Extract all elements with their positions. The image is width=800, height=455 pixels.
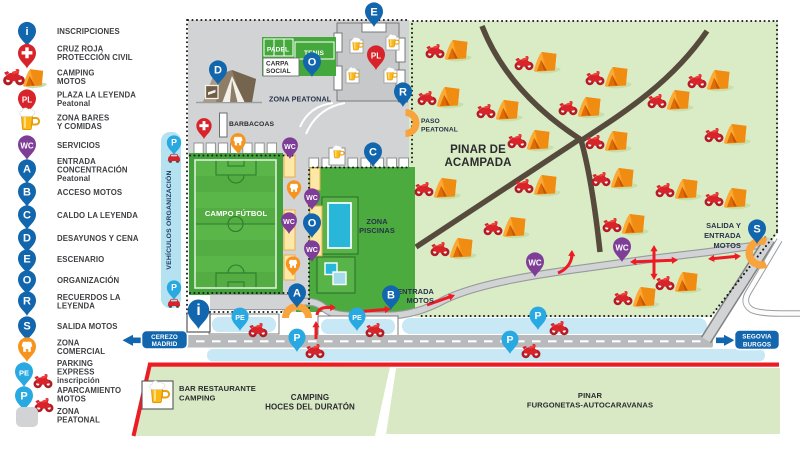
svg-text:ESCENARIO: ESCENARIO bbox=[57, 255, 104, 264]
svg-text:SOCIAL: SOCIAL bbox=[266, 68, 291, 75]
svg-text:P: P bbox=[294, 333, 301, 344]
svg-text:ACAMPADA: ACAMPADA bbox=[444, 157, 511, 169]
svg-text:BARBACOAS: BARBACOAS bbox=[229, 121, 274, 128]
svg-text:PASO: PASO bbox=[421, 118, 440, 125]
svg-text:S: S bbox=[753, 223, 760, 235]
svg-text:S: S bbox=[23, 320, 30, 332]
svg-text:PADEL: PADEL bbox=[267, 47, 289, 54]
svg-text:i: i bbox=[196, 302, 200, 319]
svg-text:SERVICIOS: SERVICIOS bbox=[57, 141, 100, 150]
svg-text:PISCINAS: PISCINAS bbox=[359, 226, 395, 235]
svg-text:WC: WC bbox=[615, 243, 629, 252]
svg-text:ENTRADA: ENTRADA bbox=[397, 287, 434, 296]
svg-text:ACCESO MOTOS: ACCESO MOTOS bbox=[57, 188, 122, 197]
svg-text:inscripción: inscripción bbox=[57, 376, 100, 385]
svg-text:Y COMIDAS: Y COMIDAS bbox=[57, 122, 102, 131]
svg-text:PINAR: PINAR bbox=[578, 391, 603, 400]
svg-text:ENTRADA: ENTRADA bbox=[704, 231, 741, 240]
svg-text:CAMPING: CAMPING bbox=[291, 393, 329, 402]
svg-text:PL: PL bbox=[22, 95, 32, 104]
svg-text:D: D bbox=[23, 232, 31, 244]
svg-text:CARPA: CARPA bbox=[266, 61, 289, 68]
svg-text:CEREZO: CEREZO bbox=[151, 334, 178, 341]
svg-text:A: A bbox=[23, 163, 31, 175]
svg-text:R: R bbox=[399, 86, 407, 98]
svg-text:CALDO LA LEYENDA: CALDO LA LEYENDA bbox=[57, 211, 138, 220]
svg-text:WC: WC bbox=[20, 141, 34, 150]
svg-text:DESAYUNOS Y CENA: DESAYUNOS Y CENA bbox=[57, 234, 139, 243]
svg-text:ORGANIZACIÓN: ORGANIZACIÓN bbox=[57, 276, 120, 285]
svg-text:CAMPO FÚTBOL: CAMPO FÚTBOL bbox=[205, 209, 268, 218]
svg-text:P: P bbox=[507, 335, 514, 346]
svg-text:O: O bbox=[308, 217, 317, 229]
svg-text:PE: PE bbox=[352, 314, 362, 322]
svg-text:PE: PE bbox=[19, 368, 29, 377]
svg-text:PROTECCIÓN CIVIL: PROTECCIÓN CIVIL bbox=[57, 53, 133, 62]
svg-text:Peatonal: Peatonal bbox=[57, 99, 90, 108]
svg-text:P: P bbox=[171, 283, 177, 293]
svg-text:INSCRIPCIONES: INSCRIPCIONES bbox=[57, 27, 120, 36]
svg-text:C: C bbox=[23, 209, 31, 221]
svg-text:MOTOS: MOTOS bbox=[714, 241, 741, 250]
svg-text:B: B bbox=[23, 186, 31, 198]
svg-text:COMERCIAL: COMERCIAL bbox=[57, 347, 105, 356]
svg-text:ZONA PEATONAL: ZONA PEATONAL bbox=[269, 95, 332, 104]
svg-text:PE: PE bbox=[235, 314, 245, 322]
svg-text:C: C bbox=[369, 146, 377, 158]
svg-text:FURGONETAS-AUTOCARAVANAS: FURGONETAS-AUTOCARAVANAS bbox=[527, 401, 653, 410]
svg-text:i: i bbox=[25, 26, 28, 38]
svg-text:ZONA: ZONA bbox=[366, 217, 388, 226]
svg-text:R: R bbox=[23, 295, 31, 307]
svg-text:BURGOS: BURGOS bbox=[743, 341, 771, 348]
svg-text:E: E bbox=[370, 6, 377, 18]
svg-text:SEGOVIA: SEGOVIA bbox=[742, 334, 772, 341]
svg-text:VEHÍCULOS ORGANIZACIÓN: VEHÍCULOS ORGANIZACIÓN bbox=[164, 170, 173, 269]
svg-text:PL: PL bbox=[371, 51, 381, 60]
svg-text:E: E bbox=[23, 253, 30, 265]
svg-text:P: P bbox=[535, 311, 542, 322]
svg-text:Peatonal: Peatonal bbox=[57, 174, 90, 183]
svg-text:PINAR DE: PINAR DE bbox=[450, 144, 506, 156]
svg-text:SALIDA MOTOS: SALIDA MOTOS bbox=[57, 322, 118, 331]
svg-text:WC: WC bbox=[284, 144, 296, 151]
svg-text:BAR RESTAURANTE: BAR RESTAURANTE bbox=[179, 384, 256, 393]
svg-text:P: P bbox=[20, 390, 27, 402]
svg-text:PEATONAL: PEATONAL bbox=[421, 127, 458, 134]
svg-text:WC: WC bbox=[306, 195, 318, 202]
svg-text:O: O bbox=[308, 56, 317, 68]
svg-text:LEYENDA: LEYENDA bbox=[57, 302, 95, 311]
svg-text:B: B bbox=[387, 289, 395, 301]
svg-text:SALIDA Y: SALIDA Y bbox=[706, 221, 741, 230]
svg-text:CAMPING: CAMPING bbox=[179, 394, 216, 403]
svg-text:O: O bbox=[23, 274, 32, 286]
svg-text:A: A bbox=[293, 287, 301, 299]
svg-text:MOTOS: MOTOS bbox=[57, 77, 86, 86]
svg-text:WC: WC bbox=[528, 258, 542, 267]
svg-text:PEATONAL: PEATONAL bbox=[57, 416, 100, 425]
svg-text:MOTOS: MOTOS bbox=[407, 296, 434, 305]
svg-text:WC: WC bbox=[306, 247, 318, 254]
svg-text:P: P bbox=[171, 138, 177, 148]
svg-text:HOCES DEL DURATÓN: HOCES DEL DURATÓN bbox=[265, 403, 355, 412]
svg-text:MOTOS: MOTOS bbox=[57, 395, 86, 404]
svg-text:WC: WC bbox=[283, 219, 295, 226]
svg-text:MADRID: MADRID bbox=[152, 341, 178, 348]
svg-text:D: D bbox=[214, 64, 222, 76]
